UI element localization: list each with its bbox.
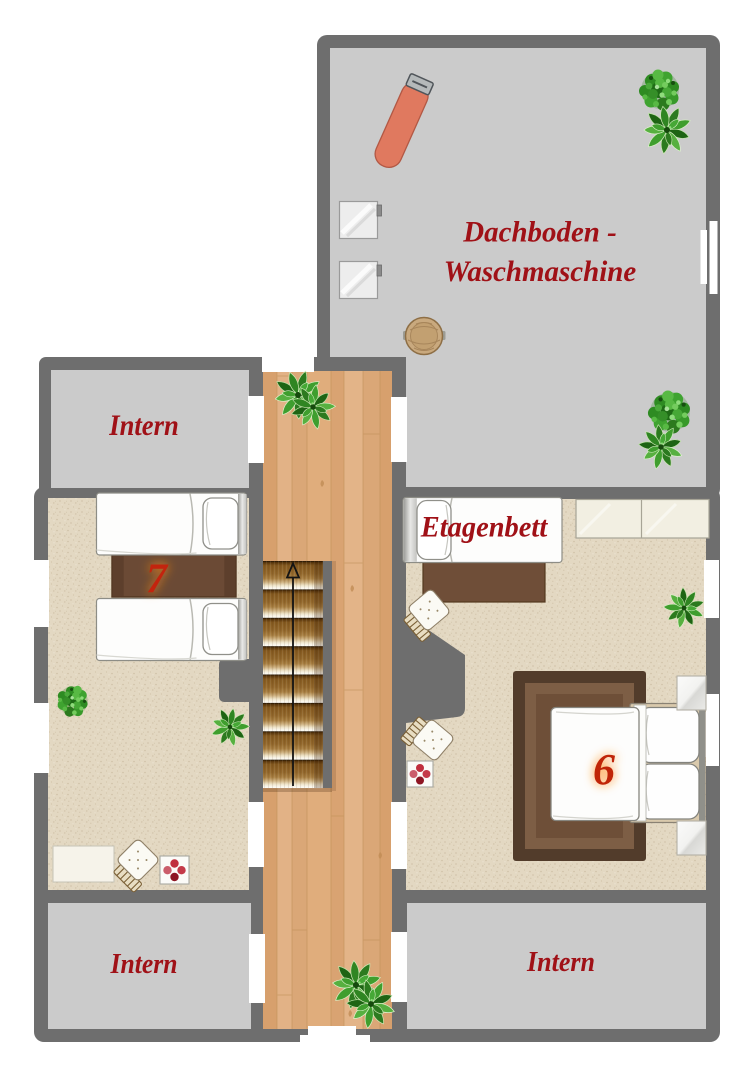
svg-text:6: 6 [593,745,615,794]
svg-text:Intern: Intern [526,946,595,978]
svg-text:7: 7 [146,557,169,603]
svg-text:Dachboden -: Dachboden - [462,216,616,249]
svg-text:Intern: Intern [110,948,178,980]
svg-text:Etagenbett: Etagenbett [420,511,549,544]
svg-text:Waschmaschine: Waschmaschine [444,255,637,288]
svg-text:Intern: Intern [108,409,178,442]
